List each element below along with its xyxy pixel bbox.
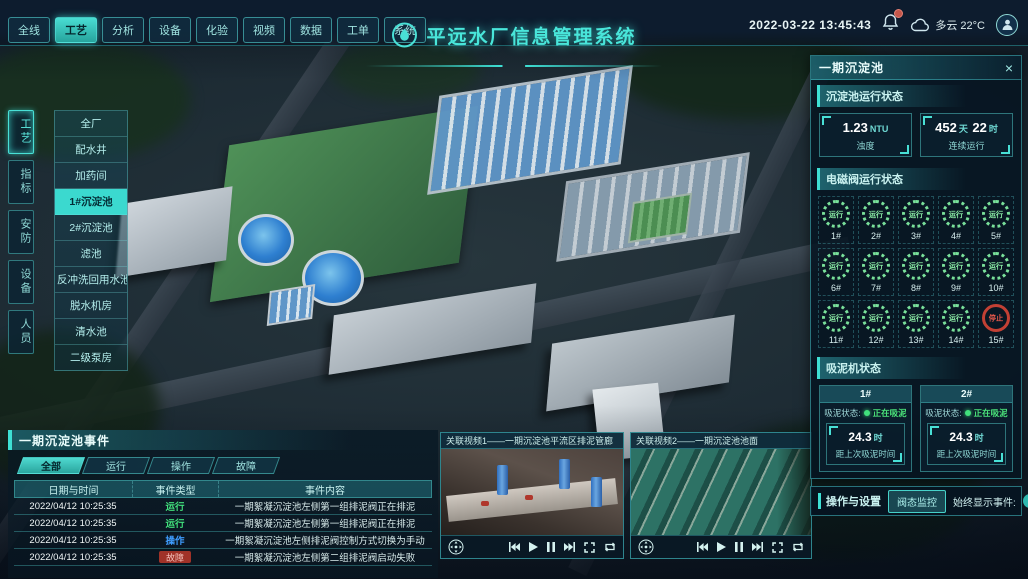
valve-id: 2#	[871, 231, 881, 241]
valve-status: 运行	[949, 261, 963, 271]
mud-time-unit: 时	[975, 433, 984, 443]
valve-indicator-4: 运行4#	[938, 196, 974, 244]
valve-id: 13#	[908, 335, 923, 345]
play-icon[interactable]	[717, 542, 726, 552]
valve-status: 运行	[869, 313, 883, 323]
turbidity-card: 1.23NTU 浊度	[819, 113, 912, 157]
mud-machine-2-id: 2#	[921, 386, 1012, 403]
play-icon[interactable]	[529, 542, 538, 552]
nav-tab-shipin[interactable]: 视频	[243, 17, 285, 43]
ptz-pad-icon[interactable]	[638, 539, 654, 555]
valve-indicator-2: 运行2#	[858, 196, 894, 244]
nav-tab-quanxian[interactable]: 全线	[8, 17, 50, 43]
side-tab-renyuan[interactable]: 人员	[8, 310, 34, 354]
valve-status: 运行	[869, 209, 883, 219]
valve-indicator-11: 运行11#	[818, 300, 854, 348]
video-panel-1: 关联视频1——一期沉淀池平流区排泥管廊	[440, 432, 624, 559]
video-1-valve	[525, 495, 533, 500]
uptime-card: 452天 22时 连续运行	[920, 113, 1013, 157]
fullscreen-icon[interactable]	[772, 542, 783, 553]
video-1-valve	[481, 501, 489, 506]
event-tab-label: 全部	[41, 458, 61, 473]
pause-icon[interactable]	[735, 542, 743, 552]
app-window: 全线 工艺 分析 设备 化验 视频 数据 工单 系统 平远水厂信息管理系统 20…	[0, 0, 1028, 579]
submenu-item-peishuijing[interactable]: 配水井	[55, 137, 127, 163]
valve-indicator-15: 停止15#	[978, 300, 1014, 348]
fullscreen-icon[interactable]	[584, 542, 595, 553]
valve-indicator-8: 运行8#	[898, 248, 934, 296]
column-header-time: 日期与时间	[15, 481, 133, 497]
valve-status: 运行	[909, 313, 923, 323]
valve-indicator-13: 运行13#	[898, 300, 934, 348]
mud-time-label: 距上次吸泥时间	[827, 448, 904, 460]
video-1-title: 关联视频1——一期沉淀池平流区排泥管廊	[441, 433, 623, 449]
detail-panel-header: 一期沉淀池 ×	[811, 56, 1021, 80]
valve-id: 8#	[911, 283, 921, 293]
submenu-item-qingshuichi[interactable]: 清水池	[55, 319, 127, 345]
section-title-run-status: 沉淀池运行状态	[817, 85, 1015, 107]
event-row[interactable]: 2022/04/12 10:25:35 故障 一期絮凝沉淀池左侧第二组排泥阀启动…	[14, 549, 432, 566]
submenu-item-erjibengfang[interactable]: 二级泵房	[55, 345, 127, 370]
weather-text: 多云 22°C	[935, 17, 985, 33]
mud-status-value: 正在吸泥	[873, 407, 907, 419]
section-title-valves: 电磁阀运行状态	[817, 168, 1015, 190]
turbidity-unit: NTU	[870, 124, 889, 134]
video-1-pump	[591, 477, 602, 507]
valve-status: 运行	[869, 261, 883, 271]
event-tab-fault[interactable]: 故障	[212, 457, 280, 474]
event-tab-label: 操作	[171, 458, 191, 473]
skip-back-icon[interactable]	[697, 542, 708, 552]
notifications-bell-icon[interactable]	[882, 13, 899, 36]
title-area: 平远水厂信息管理系统	[365, 5, 662, 67]
event-row[interactable]: 2022/04/12 10:25:35 运行 一期絮凝沉淀池左侧第一组排泥阀正在…	[14, 498, 432, 515]
event-type-badge: 故障	[159, 551, 191, 563]
valve-status: 运行	[909, 261, 923, 271]
datetime-display: 2022-03-22 13:45:43	[749, 18, 871, 32]
cloud-icon	[910, 18, 930, 32]
valve-indicator-1: 运行1#	[818, 196, 854, 244]
mud-status-value: 正在吸泥	[974, 407, 1008, 419]
event-filter-tabs: 全部 运行 操作 故障	[20, 457, 438, 474]
event-content: 一期絮凝沉淀池左侧第二组排泥阀启动失败	[218, 549, 432, 565]
left-category-tabs: 工艺 指标 安防 设备 人员	[8, 110, 34, 354]
uptime-hours: 22	[972, 120, 986, 135]
event-content: 一期絮凝沉淀池左侧第一组排泥阀正在排泥	[218, 498, 432, 514]
side-tab-anfang[interactable]: 安防	[8, 210, 34, 254]
event-time: 2022/04/12 10:25:35	[14, 498, 132, 514]
valve-id: 3#	[911, 231, 921, 241]
submenu-item-fanchongxi[interactable]: 反冲洗回用水池	[55, 267, 127, 293]
valve-id: 12#	[868, 335, 883, 345]
valve-status: 运行	[829, 209, 843, 219]
video-2-title: 关联视频2——一期沉淀池池面	[631, 433, 811, 449]
valve-status: 停止	[989, 313, 1003, 323]
video-1-view	[441, 449, 623, 535]
video-2-controls	[631, 535, 811, 558]
event-content: 一期絮凝沉淀池左侧第一组排泥阀正在排泥	[218, 515, 432, 531]
valve-indicator-12: 运行12#	[858, 300, 894, 348]
weather-display: 多云 22°C	[910, 17, 985, 33]
status-dot-icon	[965, 410, 971, 416]
valve-indicator-6: 运行6#	[818, 248, 854, 296]
mud-status-label: 吸泥状态:	[925, 407, 961, 419]
video-panel-2: 关联视频2——一期沉淀池池面	[630, 432, 812, 559]
mud-time-value: 24.3	[848, 430, 871, 444]
video-2-view	[631, 449, 811, 535]
event-type-badge: 运行	[165, 516, 184, 530]
valve-indicator-7: 运行7#	[858, 248, 894, 296]
valve-status: 运行	[949, 313, 963, 323]
valve-id: 10#	[988, 283, 1003, 293]
valve-id: 15#	[988, 335, 1003, 345]
submenu-item-quanchang[interactable]: 全厂	[55, 111, 127, 137]
nav-tab-shuju[interactable]: 数据	[290, 17, 332, 43]
uptime-days: 452	[935, 120, 957, 135]
events-table-header: 日期与时间 事件类型 事件内容	[14, 480, 432, 498]
user-avatar-icon[interactable]	[996, 14, 1018, 36]
valve-id: 5#	[991, 231, 1001, 241]
side-tab-gongyi[interactable]: 工艺	[8, 110, 34, 154]
detail-panel: 一期沉淀池 × 沉淀池运行状态 1.23NTU 浊度 452天 22时 连续运行…	[810, 55, 1022, 479]
loop-icon[interactable]	[604, 542, 616, 552]
mud-status-label: 吸泥状态:	[824, 407, 860, 419]
submenu-item-2-chendianchi[interactable]: 2#沉淀池	[55, 215, 127, 241]
pause-icon[interactable]	[547, 542, 555, 552]
notification-badge	[894, 9, 903, 18]
valve-status: 运行	[909, 209, 923, 219]
event-type-badge: 运行	[165, 499, 184, 513]
uptime-label: 连续运行	[923, 139, 1010, 152]
mud-machine-1-id: 1#	[820, 386, 911, 403]
skip-forward-icon[interactable]	[564, 542, 575, 552]
mud-machine-2-card: 2# 吸泥状态: 正在吸泥 24.3时 距上次吸泥时间	[920, 385, 1013, 472]
operations-settings-title: 操作与设置	[818, 493, 881, 509]
valve-indicator-14: 运行14#	[938, 300, 974, 348]
skip-forward-icon[interactable]	[752, 542, 763, 552]
valve-status: 运行	[949, 209, 963, 219]
event-tab-all[interactable]: 全部	[17, 457, 85, 474]
event-time: 2022/04/12 10:25:35	[14, 532, 132, 548]
event-tab-label: 运行	[106, 458, 126, 473]
column-header-content: 事件内容	[219, 481, 431, 497]
mud-machine-1-card: 1# 吸泥状态: 正在吸泥 24.3时 距上次吸泥时间	[819, 385, 912, 472]
valve-status: 运行	[989, 261, 1003, 271]
valve-id: 6#	[831, 283, 841, 293]
valve-status-grid: 运行1# 运行2# 运行3# 运行4# 运行5# 运行6# 运行7# 运行8# …	[811, 194, 1021, 352]
column-header-type: 事件类型	[133, 481, 219, 497]
skip-back-icon[interactable]	[509, 542, 520, 552]
side-tab-shebei[interactable]: 设备	[8, 260, 34, 304]
event-row[interactable]: 2022/04/12 10:25:35 操作 一期絮凝沉淀池左侧排泥阀控制方式切…	[14, 532, 432, 549]
submenu-item-lvchi[interactable]: 滤池	[55, 241, 127, 267]
valve-monitor-button[interactable]: 阀态监控	[888, 490, 946, 513]
mud-time-label: 距上次吸泥时间	[928, 448, 1005, 460]
event-content: 一期絮凝沉淀池左侧排泥阀控制方式切换为手动	[218, 532, 432, 548]
event-type-badge: 操作	[165, 533, 184, 547]
mud-time-card: 24.3时 距上次吸泥时间	[826, 423, 905, 465]
valve-id: 11#	[829, 335, 843, 345]
submenu-item-jiayaojian[interactable]: 加药间	[55, 163, 127, 189]
event-time: 2022/04/12 10:25:35	[14, 549, 132, 565]
main-nav: 全线 工艺 分析 设备 化验 视频 数据 工单 系统	[8, 17, 426, 43]
side-tab-zhibiao[interactable]: 指标	[8, 160, 34, 204]
nav-tab-gongyi[interactable]: 工艺	[55, 17, 97, 43]
event-tab-operation[interactable]: 操作	[147, 457, 215, 474]
run-status-stats: 1.23NTU 浊度 452天 22时 连续运行	[811, 111, 1021, 163]
mud-time-card: 24.3时 距上次吸泥时间	[927, 423, 1006, 465]
event-time: 2022/04/12 10:25:35	[14, 515, 132, 531]
valve-indicator-3: 运行3#	[898, 196, 934, 244]
turbidity-value: 1.23	[843, 120, 868, 135]
events-table: 日期与时间 事件类型 事件内容 2022/04/12 10:25:35 运行 一…	[14, 480, 432, 566]
water-drop-logo-icon	[391, 22, 417, 48]
nav-tab-fenxi[interactable]: 分析	[102, 17, 144, 43]
valve-id: 9#	[951, 283, 961, 293]
events-panel-title: 一期沉淀池事件	[8, 430, 438, 450]
process-submenu: 全厂 配水井 加药间 1#沉淀池 2#沉淀池 滤池 反冲洗回用水池 脱水机房 清…	[54, 110, 128, 371]
uptime-hours-unit: 时	[989, 124, 998, 134]
status-dot-icon	[864, 410, 870, 416]
nav-tab-shebei[interactable]: 设备	[149, 17, 191, 43]
valve-id: 7#	[871, 283, 881, 293]
event-tab-run[interactable]: 运行	[82, 457, 150, 474]
event-tab-label: 故障	[236, 458, 256, 473]
detail-panel-title: 一期沉淀池	[819, 59, 884, 76]
event-row[interactable]: 2022/04/12 10:25:35 运行 一期絮凝沉淀池左侧第一组排泥阀正在…	[14, 515, 432, 532]
video-1-pump	[559, 459, 570, 489]
valve-id: 1#	[831, 231, 841, 241]
valve-indicator-10: 运行10#	[978, 248, 1014, 296]
close-icon[interactable]: ×	[1005, 61, 1013, 75]
valve-id: 4#	[951, 231, 961, 241]
top-bar: 全线 工艺 分析 设备 化验 视频 数据 工单 系统 平远水厂信息管理系统 20…	[0, 0, 1028, 46]
submenu-item-tuoshuijifang[interactable]: 脱水机房	[55, 293, 127, 319]
valve-status: 运行	[829, 313, 843, 323]
mud-time-value: 24.3	[949, 430, 972, 444]
mud-time-unit: 时	[874, 433, 883, 443]
loop-icon[interactable]	[792, 542, 804, 552]
operations-settings-bar: 操作与设置 阀态监控 始终显示事件:	[810, 486, 1022, 516]
events-panel: 一期沉淀池事件 全部 运行 操作 故障 日期与时间 事件类型 事件内容 2022…	[8, 430, 438, 578]
valve-indicator-5: 运行5#	[978, 196, 1014, 244]
nav-tab-huayan[interactable]: 化验	[196, 17, 238, 43]
valve-status: 运行	[829, 261, 843, 271]
valve-status: 运行	[989, 209, 1003, 219]
uptime-days-unit: 天	[959, 124, 968, 134]
top-right-area: 2022-03-22 13:45:43 多云 22°C	[749, 13, 1018, 36]
ptz-pad-icon[interactable]	[448, 539, 464, 555]
section-title-mud-scraper: 吸泥机状态	[817, 357, 1015, 379]
page-title: 平远水厂信息管理系统	[426, 22, 636, 49]
valve-indicator-9: 运行9#	[938, 248, 974, 296]
submenu-item-1-chendianchi[interactable]: 1#沉淀池	[55, 189, 127, 215]
valve-id: 14#	[948, 335, 963, 345]
always-show-events-label: 始终显示事件:	[953, 494, 1016, 509]
video-1-controls	[441, 535, 623, 558]
mud-machine-cards: 1# 吸泥状态: 正在吸泥 24.3时 距上次吸泥时间 2# 吸泥状态: 正在吸…	[811, 383, 1021, 476]
turbidity-label: 浊度	[822, 139, 909, 152]
video-1-pump	[497, 465, 508, 495]
